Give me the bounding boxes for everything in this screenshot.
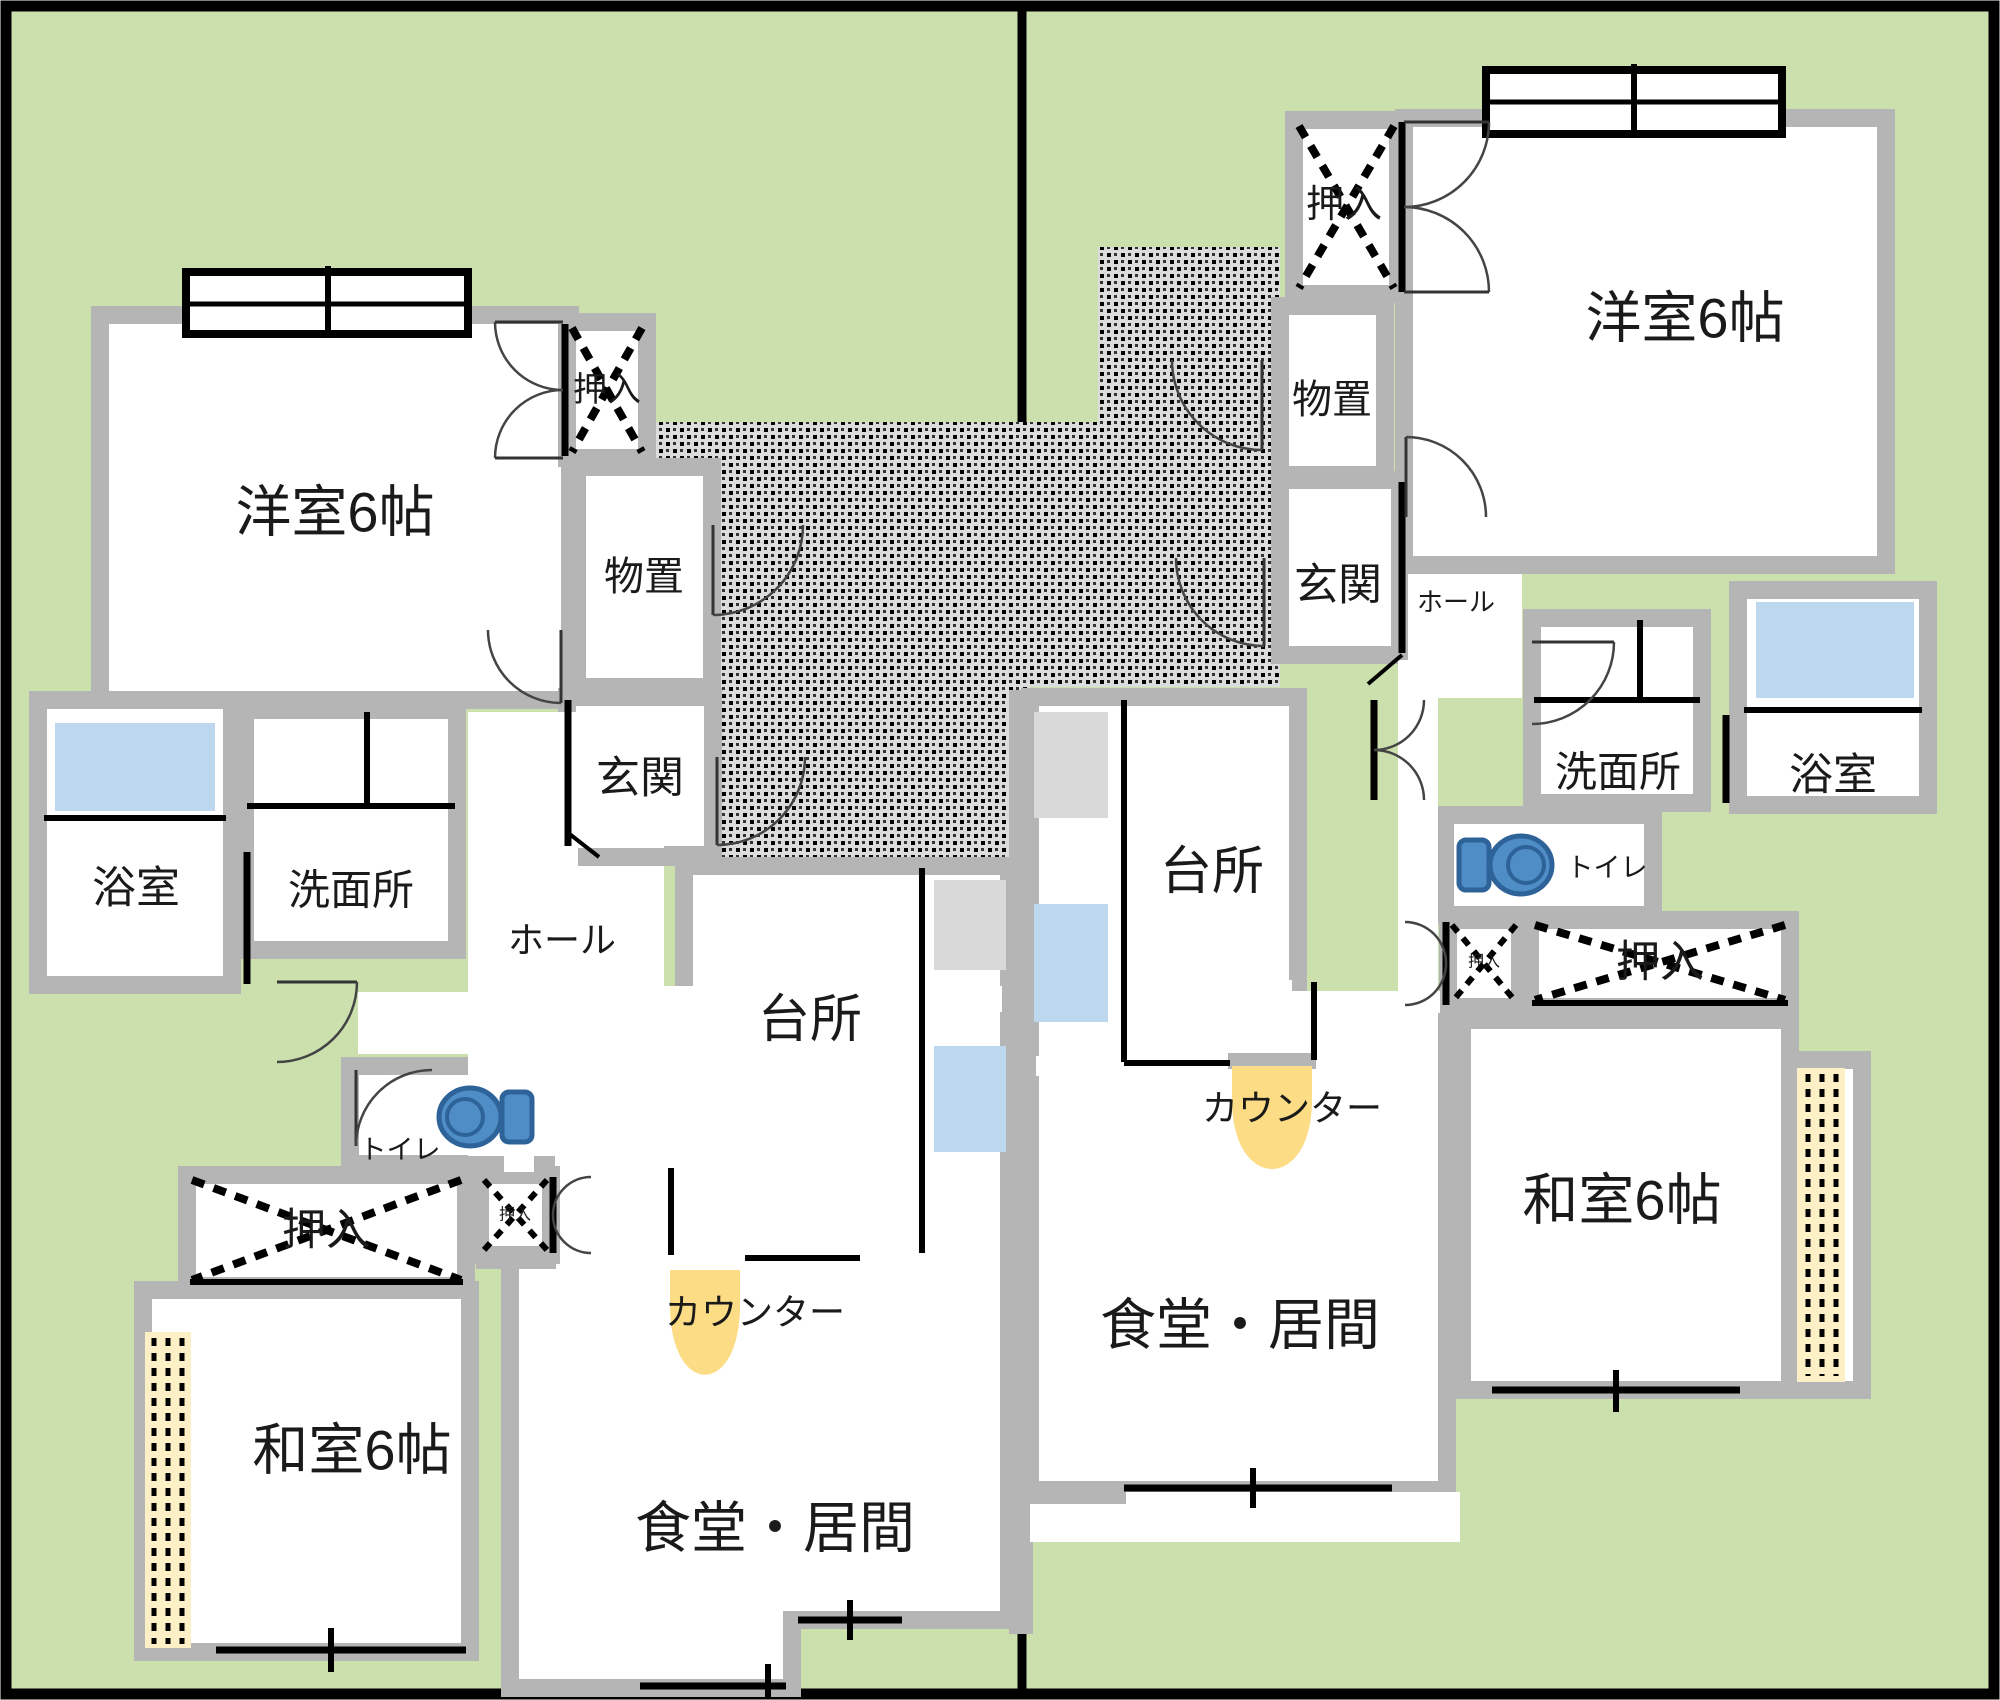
kitchen-counter-icon	[934, 880, 1006, 970]
left-closet-small-bottom-wall	[476, 1253, 556, 1269]
room-label: 押入	[573, 371, 641, 409]
tatami-strip	[145, 1332, 191, 1648]
room-label: 押入	[1306, 184, 1382, 226]
toilet-icon	[1459, 836, 1552, 894]
room-label: カウンター	[1202, 1088, 1382, 1129]
room-label: 押入	[1468, 953, 1500, 971]
window-icon	[186, 266, 468, 338]
room-label: 洋室6帖	[235, 481, 434, 544]
room-label: カウンター	[665, 1292, 845, 1333]
room-label: 押入	[282, 1206, 370, 1255]
left-entrance-bottom-wall	[578, 848, 690, 866]
room-label: 玄関	[596, 754, 684, 803]
room-label: 玄関	[1294, 561, 1382, 610]
room-label: トイレ	[360, 1135, 441, 1165]
kitchen-counter-icon	[1034, 712, 1108, 818]
room-label: 物置	[604, 555, 684, 599]
room-label: 洋室6帖	[1585, 287, 1784, 350]
room-label: 押入	[499, 1206, 531, 1224]
right-corridor	[1398, 660, 1438, 1016]
bathtub-icon	[55, 723, 215, 811]
room-label: 和室6帖	[252, 1419, 451, 1482]
toilet-tank	[1459, 840, 1489, 890]
room-label: 和室6帖	[1522, 1169, 1721, 1232]
room-label: 物置	[1292, 378, 1372, 422]
toilet-icon	[439, 1088, 532, 1146]
room-label: 食堂・居間	[1100, 1294, 1380, 1357]
room-label: トイレ	[1567, 853, 1648, 883]
room-label: ホール	[508, 920, 616, 961]
room-label: 台所	[758, 991, 862, 1049]
room-label: 食堂・居間	[635, 1497, 915, 1560]
floor-plan-page: 洋室6帖 押入 物置 玄関 ホール 浴室 洗面所 トイレ 台所 カウンター 食堂…	[0, 0, 2000, 1700]
room-label: 洗面所	[288, 867, 414, 914]
room-label: ホール	[1417, 587, 1495, 617]
room-label: 押入	[1616, 938, 1704, 987]
window-icon	[1486, 64, 1782, 138]
room-label: 洗面所	[1555, 749, 1681, 796]
bathtub-icon	[1756, 602, 1914, 698]
tatami-strip	[1797, 1068, 1845, 1382]
room-label: 浴室	[1789, 751, 1877, 800]
kitchen-sink-icon	[1034, 904, 1108, 1022]
floor-plan-svg: 洋室6帖 押入 物置 玄関 ホール 浴室 洗面所 トイレ 台所 カウンター 食堂…	[0, 0, 2000, 1700]
kitchen-sink-icon	[934, 1046, 1006, 1152]
right-dining-bottom-wall	[1030, 1486, 1126, 1504]
toilet-tank	[502, 1092, 532, 1142]
room-label: 台所	[1160, 843, 1264, 901]
left-washroom	[245, 710, 457, 950]
room-label: 浴室	[92, 864, 180, 913]
